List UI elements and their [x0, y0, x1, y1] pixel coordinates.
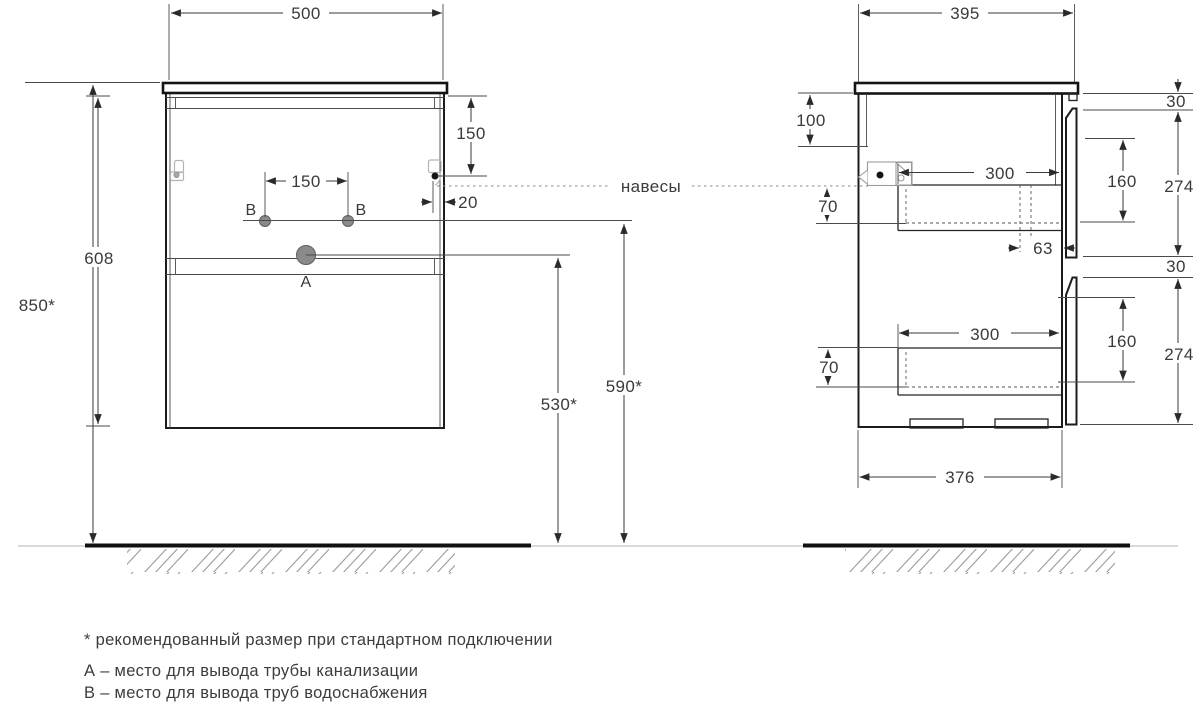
dim-back-rail: 100	[796, 111, 826, 130]
dim-water-height: 590*	[606, 377, 643, 396]
side-dimensions: 395 100 70 300 63 30 274	[789, 3, 1196, 488]
wall-bracket-right-icon	[429, 160, 442, 185]
dim-side-depth: 395	[950, 4, 980, 23]
dim-bottom-depth: 376	[945, 468, 975, 487]
dim-hanger-drop-bottom: 70	[819, 358, 839, 377]
water-outlet-points	[260, 216, 354, 227]
drawer-front-top	[1066, 109, 1077, 258]
dim-front-width: 500	[291, 4, 321, 23]
dim-face-height-bottom: 274	[1164, 345, 1194, 364]
front-view	[163, 83, 632, 428]
side-hanger-bracket-icon	[859, 162, 913, 186]
hangers-reference: навесы	[437, 177, 868, 196]
floor-hatch-left	[127, 549, 455, 574]
floor-hatch-right	[845, 549, 1115, 574]
dim-hanger-drop-top: 70	[818, 197, 838, 216]
drawing-canvas: 500 850* 608 150 20 150 B B A	[0, 0, 1196, 703]
dim-front-carcass-height: 608	[84, 249, 114, 268]
point-b-left	[260, 216, 271, 227]
point-b-right	[343, 216, 354, 227]
floor-line	[18, 546, 1178, 575]
dim-siphon-offset: 63	[1033, 239, 1053, 258]
note-point-b: В – место для вывода труб водоснабжения	[84, 684, 428, 703]
label-point-b-right: B	[355, 202, 366, 219]
dim-face-height-top: 274	[1164, 177, 1194, 196]
note-recommended-size: * рекомендованный размер при стандартном…	[84, 631, 553, 650]
note-point-a: А – место для вывода трубы канализации	[84, 662, 418, 681]
dim-inner-height-top: 160	[1107, 172, 1137, 191]
dim-front-total-height: 850*	[19, 296, 56, 315]
dim-outlet-spacing: 150	[291, 172, 321, 191]
label-point-a: A	[300, 274, 311, 291]
dim-drain-height: 530*	[541, 395, 578, 414]
drawer-front-bottom	[1066, 278, 1077, 425]
side-hanger-point	[877, 172, 884, 179]
dim-inner-height-bottom: 160	[1107, 332, 1137, 351]
drawer-box-bottom	[898, 348, 1062, 395]
label-point-b-left: B	[245, 202, 256, 219]
technical-drawing-vanity: 500 850* 608 150 20 150 B B A	[0, 0, 1196, 703]
dim-hanger-side-offset: 20	[458, 193, 478, 212]
side-countertop	[855, 83, 1078, 94]
hangers-label: навесы	[621, 177, 681, 196]
dim-gap-top: 30	[1166, 92, 1186, 111]
wall-bracket-left-icon	[171, 161, 184, 181]
front-top-rail	[166, 98, 444, 109]
dim-hanger-top-offset: 150	[456, 124, 486, 143]
dim-drawer-depth-bottom: 300	[970, 325, 1000, 344]
dim-drawer-depth-top: 300	[985, 164, 1015, 183]
dim-gap-mid: 30	[1166, 257, 1186, 276]
front-countertop	[163, 83, 447, 93]
